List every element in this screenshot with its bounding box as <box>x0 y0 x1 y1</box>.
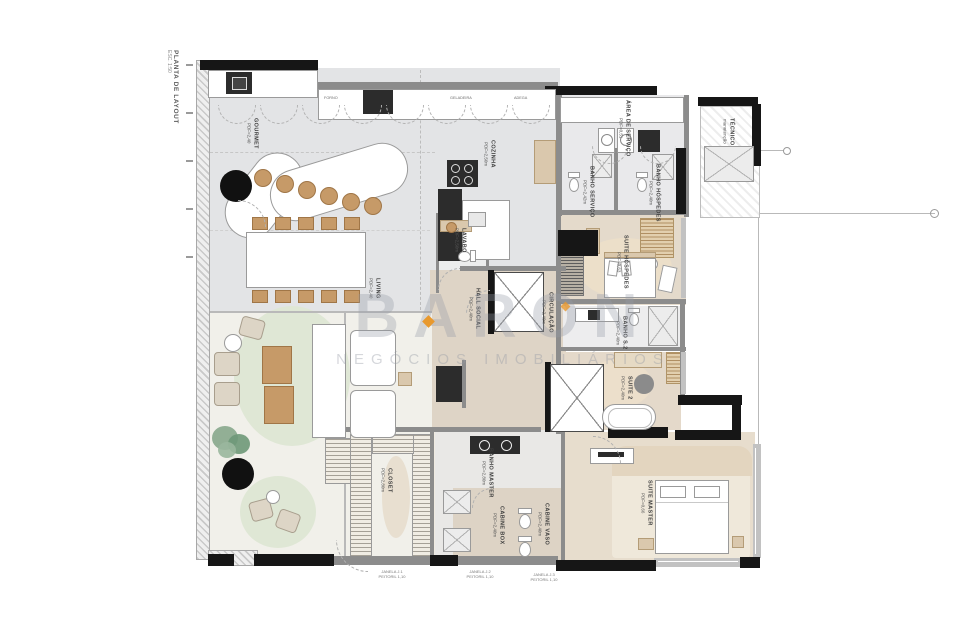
counter-top-left <box>208 70 318 98</box>
wall-black-bottom-2 <box>430 555 458 566</box>
room-label-cabine-box: CABINE BOXPDF=2,40m <box>492 506 505 545</box>
leader-line <box>760 213 935 214</box>
leader-line-tecnico <box>758 150 784 151</box>
bathtub-inner <box>608 408 652 428</box>
burner <box>464 176 473 185</box>
shower-marker-2 <box>443 528 471 552</box>
appliance-label: ADEGA <box>514 96 527 100</box>
room-label-cozinha: COZINHAPDF=2,50m <box>483 140 496 168</box>
dining-chair <box>275 217 291 230</box>
window-annotation-1: JANELA J.1PEITORIL 1,10 <box>370 569 414 579</box>
dining-chair <box>344 290 360 303</box>
room-label-tecnico: TÉCNICOmanutenção <box>722 118 735 146</box>
ruler-tick <box>186 208 193 210</box>
living-console <box>312 324 346 438</box>
shower-s2 <box>648 306 678 346</box>
tv-panel <box>436 366 462 402</box>
dining-chair <box>344 217 360 230</box>
pillow <box>694 486 720 498</box>
terrace-table-2 <box>264 386 294 424</box>
ruler-tick <box>186 64 193 66</box>
window-glass-line <box>755 448 756 554</box>
elevator-2 <box>550 364 604 432</box>
round-table-black <box>220 170 252 202</box>
terrace-side-table-2 <box>266 490 280 504</box>
pantry-cabinet <box>534 140 556 184</box>
island-sink <box>468 212 486 227</box>
appliance-label: FORNO <box>324 96 338 100</box>
window-annotation-2: JANELA J.2PEITORIL 1,10 <box>458 569 502 579</box>
bidet-bowl <box>519 542 531 557</box>
wall-black-bottom-4 <box>740 557 760 568</box>
oven-window <box>232 77 247 90</box>
plan-title-block: PLANTA DE LAYOUT ESC. 1:50 <box>166 50 179 124</box>
room-label-gourmet: GOURMETPDF=2,40 <box>246 118 259 149</box>
wicker-armchair <box>214 352 240 376</box>
terrace-side-table <box>224 334 242 352</box>
burner <box>464 164 473 173</box>
side-table-living <box>398 372 412 386</box>
wall-left-hatched <box>196 60 210 560</box>
vanity-s2-sink <box>588 310 600 320</box>
lounge-sofa-1 <box>350 330 396 386</box>
bar-stool <box>298 181 316 199</box>
bar-stool <box>364 197 382 215</box>
dining-chair <box>321 217 337 230</box>
room-label-area-servico: ÁREA DE SERVIÇOPDF=0,51 <box>618 100 631 157</box>
wall-tv-back <box>462 360 466 408</box>
shaft-block <box>558 230 598 256</box>
floor-plan-canvas: PLANTA DE LAYOUT ESC. 1:50 <box>0 0 960 640</box>
window-bottom-suite-master <box>654 558 742 567</box>
wall-black-mid-right <box>678 395 742 405</box>
burner <box>451 176 460 185</box>
ruler-tick <box>186 112 193 114</box>
plant-monstera <box>218 442 236 458</box>
leader-line-end <box>930 209 939 218</box>
wall-black-suite-master-top <box>675 430 741 440</box>
dining-chair <box>252 290 268 303</box>
plan-title: PLANTA DE LAYOUT <box>172 50 179 124</box>
wall-service-bottom <box>558 210 686 215</box>
bar-stool <box>320 187 338 205</box>
pillow <box>660 486 686 498</box>
room-label-suite-hospedes: SUITE HÓSPEDESPDF=0,63 <box>616 235 629 289</box>
tecnico-equipment <box>704 146 754 182</box>
wall-hall-top <box>460 266 566 271</box>
bar-stool <box>276 175 294 193</box>
blanket-line <box>656 502 728 503</box>
burner <box>451 164 460 173</box>
toilet-bowl <box>519 514 531 529</box>
room-label-banho-s2: BANHO S.2PDF=2,40m <box>615 316 628 350</box>
dining-chair <box>298 290 314 303</box>
terrace-table-1 <box>262 346 292 384</box>
wall-bottom-banho <box>456 556 558 565</box>
dining-chair <box>321 290 337 303</box>
vanity-double-black <box>470 436 520 454</box>
room-label-banho-servico: BANHO SERVIÇOPDF=2,42m <box>582 166 595 218</box>
elevator-1 <box>494 272 544 332</box>
room-label-hall-social: HALL SOCIALPDF=2,40m <box>468 288 481 329</box>
room-label-circulacao: CIRCULAÇÃOPDF=2,40m <box>541 292 554 333</box>
room-label-suite-master: SUITE MASTERPDF=0,66 <box>640 480 653 526</box>
wall-black-banho-hospedes <box>676 148 686 214</box>
wall-black-top-right <box>698 97 758 106</box>
office-chair <box>634 374 654 394</box>
wicker-armchair <box>214 382 240 406</box>
window-suite-hospedes <box>681 218 686 298</box>
nightstand <box>732 536 744 548</box>
toilet-bowl <box>569 178 579 192</box>
nightstand <box>638 538 654 550</box>
window-suite-2 <box>681 352 686 394</box>
glass-line-terrace <box>208 311 432 313</box>
room-label-banho-hospedes: BANHO HÓSPEDESPDF=2,40m <box>648 164 661 222</box>
room-label-lavabo: LAVABOPDF=2,50m <box>454 228 467 253</box>
wall-black-bottom-left <box>208 554 234 566</box>
dining-table <box>246 232 366 288</box>
room-label-suite-2: SUITE 2PDF=2,40m <box>620 376 633 400</box>
room-label-cabine-vaso: CABINE VASOPDF=2,40m <box>537 503 550 545</box>
wall-black-top-left <box>200 60 318 70</box>
dining-chair <box>298 217 314 230</box>
wall-kitchen-top <box>316 82 558 89</box>
vanity-sink <box>501 440 512 451</box>
bar-stool <box>254 169 272 187</box>
leader-line-end <box>783 147 791 155</box>
window-annotation-3: JANELA J.3PEITORIL 1,10 <box>522 572 566 582</box>
wall-suite-master-left <box>561 432 565 560</box>
washer-door <box>601 134 613 146</box>
dining-chair <box>275 290 291 303</box>
ruler-tick <box>186 256 193 258</box>
appliance-label: GELADEIRA <box>450 96 472 100</box>
toilet-bowl <box>637 178 647 192</box>
window-glass-line <box>658 561 738 562</box>
wall-suite-hospedes-bottom <box>558 299 686 304</box>
wall-closet-banho-divider <box>430 430 434 562</box>
toilet-bowl <box>629 313 639 326</box>
round-table-black-2 <box>222 458 254 490</box>
room-label-living: LIVINGPDF=2,40 <box>368 278 381 299</box>
wall-black-bottom-1 <box>254 554 334 566</box>
room-label-closet: CLOSETPDF=2,80m <box>380 468 393 493</box>
desk-suite-2 <box>614 352 662 368</box>
ruler-tick <box>186 160 193 162</box>
shower-marker-1 <box>443 490 471 514</box>
wall-black-bottom-3 <box>556 560 656 571</box>
lounge-sofa-2 <box>350 390 396 438</box>
bar-stool <box>342 193 360 211</box>
wall-black-service-top <box>545 86 657 95</box>
room-label-banho-master: BANHO MASTERPDF=2,80m <box>481 448 494 498</box>
